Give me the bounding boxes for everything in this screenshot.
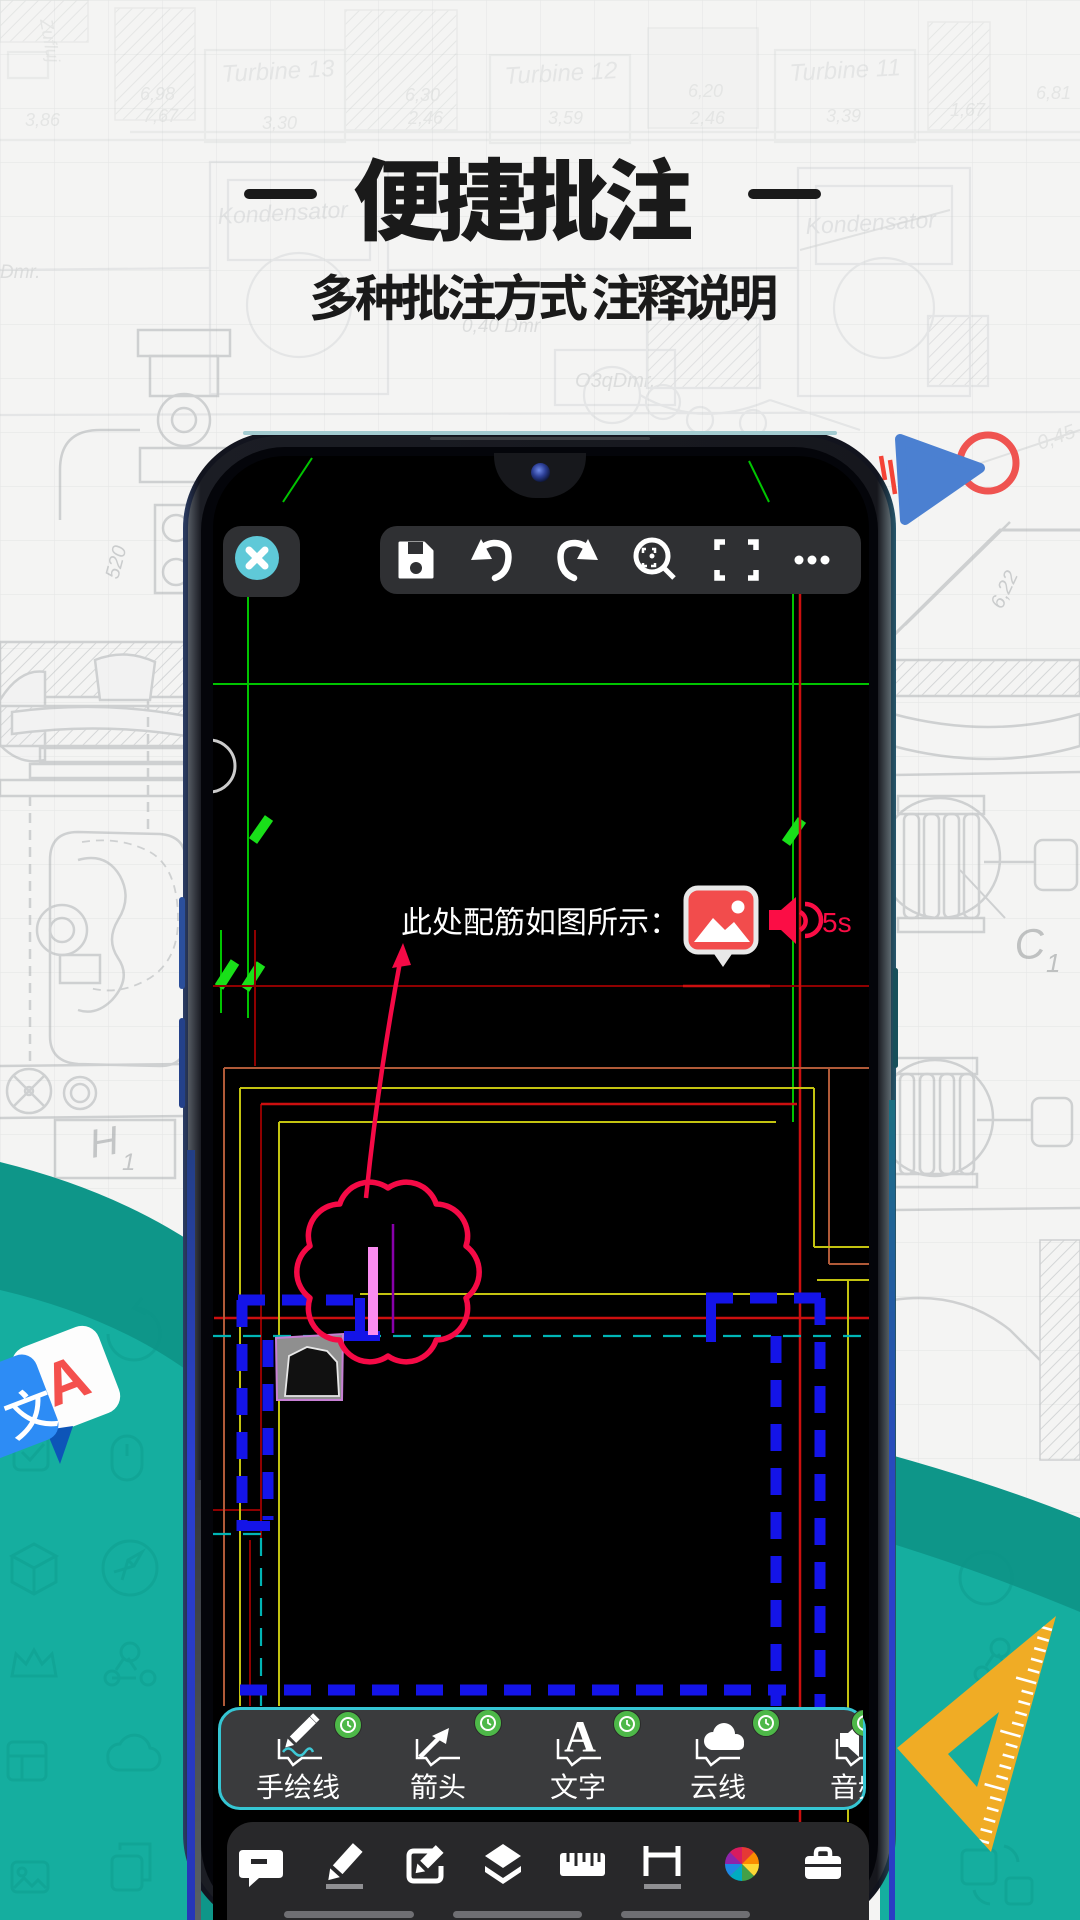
svg-text:A: A [564,1712,596,1761]
svg-text:C: C [1012,919,1048,969]
svg-text:O3qDmr.: O3qDmr. [575,370,655,392]
svg-text:1: 1 [1046,948,1060,978]
svg-text:5s: 5s [822,907,852,938]
